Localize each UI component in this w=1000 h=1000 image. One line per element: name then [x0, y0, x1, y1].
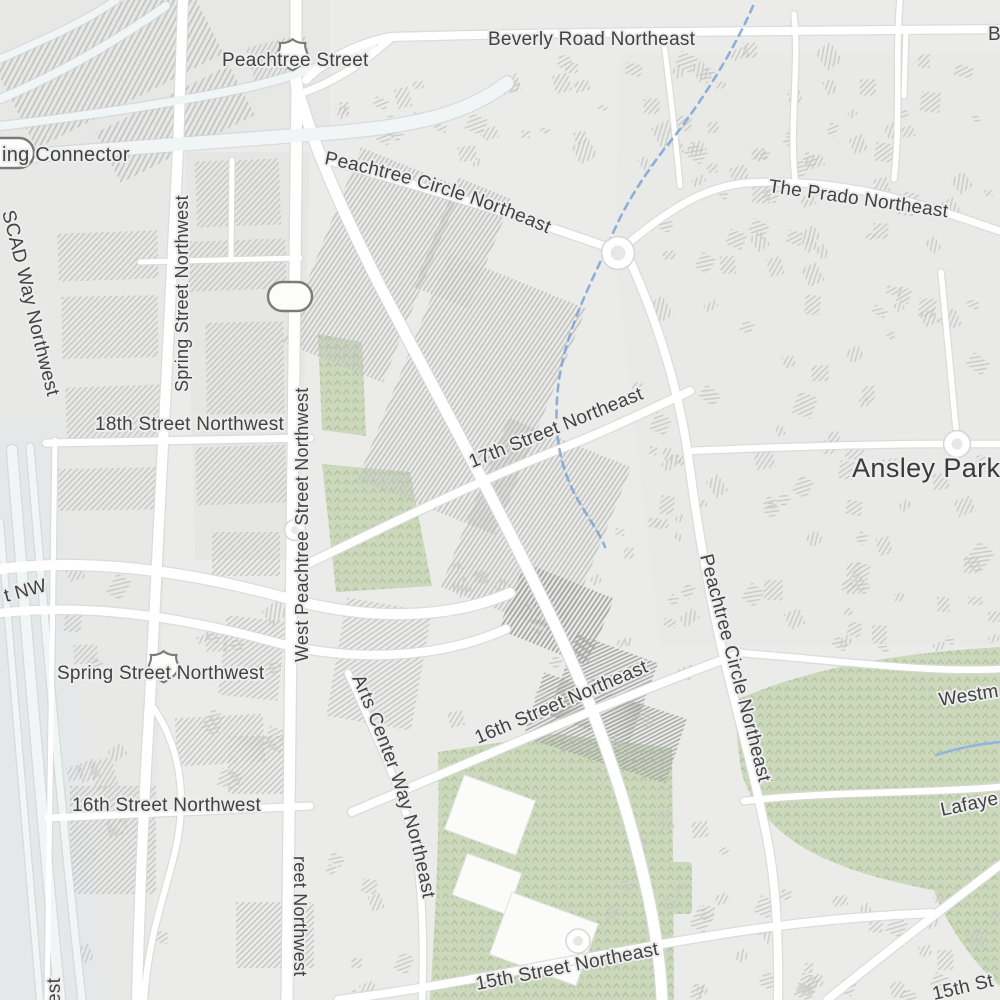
map-canvas[interactable]: Peachtree Street Beverly Road Northeast … — [0, 0, 1000, 1000]
building-block — [61, 295, 158, 359]
building — [866, 232, 877, 240]
building-block — [187, 238, 287, 291]
building — [458, 145, 478, 163]
street-label-spring-street-vertical[interactable]: Spring Street Northwest — [172, 195, 192, 392]
building — [845, 500, 863, 517]
building-block — [175, 714, 265, 767]
building — [988, 610, 1000, 622]
building — [624, 547, 634, 559]
street-label-18th-street[interactable]: 18th Street Northwest — [95, 414, 284, 435]
building-block — [57, 230, 159, 281]
street-label-beverly-tail[interactable]: B — [988, 24, 1000, 45]
building-block — [195, 159, 281, 228]
road-prado-candle-west — [793, 14, 796, 187]
street-label-west-peachtree-tail[interactable]: reet Northwest — [290, 856, 310, 977]
building — [691, 821, 708, 839]
building — [659, 495, 676, 516]
building — [804, 963, 813, 974]
blank-pill-marker-icon — [268, 282, 312, 311]
building — [707, 122, 719, 134]
building — [937, 950, 953, 970]
building — [351, 957, 362, 968]
building — [716, 81, 727, 89]
roundabout — [602, 237, 635, 270]
building — [764, 580, 783, 601]
building — [984, 190, 993, 196]
building — [80, 849, 98, 862]
street-label-west-peachtree[interactable]: West Peachtree Street Northwest — [292, 387, 312, 662]
building — [918, 54, 930, 68]
street-label-spring-street-horizontal[interactable]: Spring Street Northwest — [57, 663, 265, 684]
street-label-connector[interactable]: ing Connector — [2, 144, 130, 166]
building — [968, 597, 983, 606]
building-block — [212, 532, 280, 576]
road-ansley-grid-2 — [904, 30, 906, 96]
building — [920, 91, 942, 113]
building — [844, 608, 852, 615]
building — [890, 981, 906, 998]
building — [565, 62, 578, 73]
building — [412, 81, 424, 89]
building — [720, 256, 736, 274]
building — [812, 365, 829, 381]
road-eighteenth-street-nw — [46, 438, 310, 443]
building — [707, 164, 718, 173]
street-label-16th-street-nw[interactable]: 16th Street Northwest — [72, 795, 261, 816]
map-viewport[interactable]: Peachtree Street Beverly Road Northeast … — [0, 0, 1000, 1000]
building-block — [195, 444, 287, 505]
building — [521, 130, 530, 138]
building — [643, 98, 660, 114]
street-label-peachtree-street[interactable]: Peachtree Street — [222, 50, 369, 71]
building — [649, 446, 658, 456]
road-service-road-v — [231, 160, 232, 258]
building-block — [205, 321, 285, 414]
street-label-tail-bottom-left[interactable]: est — [44, 977, 65, 1000]
locality-label-ansley-park[interactable]: Ansley Park — [852, 453, 1000, 483]
building — [860, 79, 876, 95]
building — [806, 973, 824, 987]
building — [64, 613, 82, 633]
building — [937, 597, 950, 613]
building — [361, 878, 378, 894]
building — [990, 909, 1000, 922]
building — [874, 142, 894, 163]
roundabout — [566, 929, 590, 953]
building — [872, 625, 887, 644]
building — [804, 295, 821, 316]
building-block — [58, 467, 167, 511]
street-label-beverly-road[interactable]: Beverly Road Northeast — [488, 29, 696, 50]
building — [662, 250, 676, 260]
building — [648, 518, 659, 527]
building — [474, 571, 489, 583]
